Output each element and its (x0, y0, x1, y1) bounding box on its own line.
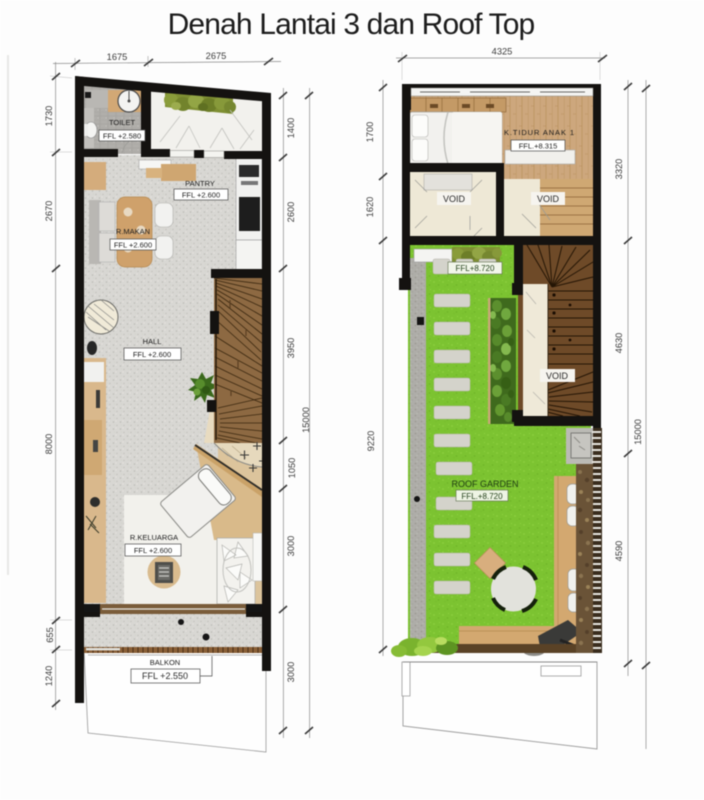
svg-text:VOID: VOID (546, 371, 569, 381)
svg-text:K.TIDUR ANAK 1: K.TIDUR ANAK 1 (504, 128, 574, 137)
svg-text:655: 655 (45, 627, 55, 643)
svg-text:3320: 3320 (614, 159, 624, 180)
svg-text:9220: 9220 (366, 431, 376, 452)
svg-text:FFL +2.600: FFL +2.600 (114, 241, 152, 250)
svg-text:15000: 15000 (633, 419, 643, 445)
svg-text:FFL.+8.315: FFL.+8.315 (519, 142, 558, 151)
svg-text:FFL +2.600: FFL +2.600 (134, 546, 172, 555)
svg-text:1400: 1400 (286, 118, 296, 139)
svg-text:4630: 4630 (614, 333, 624, 354)
svg-text:2675: 2675 (206, 51, 227, 61)
svg-text:FFL+8.720: FFL+8.720 (456, 264, 495, 273)
svg-text:3000: 3000 (286, 662, 296, 683)
svg-text:R.MAKAN: R.MAKAN (116, 227, 150, 236)
svg-text:1240: 1240 (44, 666, 54, 687)
svg-text:FFL +2.550: FFL +2.550 (142, 671, 188, 681)
svg-text:1675: 1675 (107, 52, 128, 62)
svg-text:8000: 8000 (44, 434, 54, 455)
svg-text:VOID: VOID (443, 194, 466, 204)
svg-text:PANTRY: PANTRY (185, 179, 215, 188)
svg-text:R.KELUARGA: R.KELUARGA (130, 533, 178, 542)
svg-text:3950: 3950 (286, 338, 296, 359)
svg-text:15000: 15000 (301, 407, 311, 433)
svg-text:2600: 2600 (286, 202, 296, 223)
svg-text:FFL.+8.720: FFL.+8.720 (461, 492, 503, 501)
svg-text:4325: 4325 (492, 47, 513, 57)
svg-text:FFL +2.600: FFL +2.600 (133, 350, 171, 359)
svg-text:2670: 2670 (44, 201, 54, 222)
svg-text:1620: 1620 (365, 197, 375, 218)
svg-text:1700: 1700 (365, 122, 375, 143)
svg-text:FFL +2.580: FFL +2.580 (103, 132, 141, 141)
svg-text:TOILET: TOILET (109, 118, 136, 127)
svg-text:1730: 1730 (44, 106, 54, 127)
svg-text:HALL: HALL (143, 337, 162, 346)
svg-text:1050: 1050 (287, 458, 297, 479)
svg-text:VOID: VOID (537, 194, 560, 204)
svg-text:3000: 3000 (286, 536, 296, 557)
svg-text:ROOF GARDEN: ROOF GARDEN (451, 479, 518, 489)
svg-text:FFL +2.600: FFL +2.600 (182, 191, 220, 200)
svg-text:4590: 4590 (614, 541, 624, 562)
svg-text:Denah Lantai 3 dan Roof Top: Denah Lantai 3 dan Roof Top (168, 8, 535, 41)
svg-text:BALKON: BALKON (150, 658, 180, 667)
